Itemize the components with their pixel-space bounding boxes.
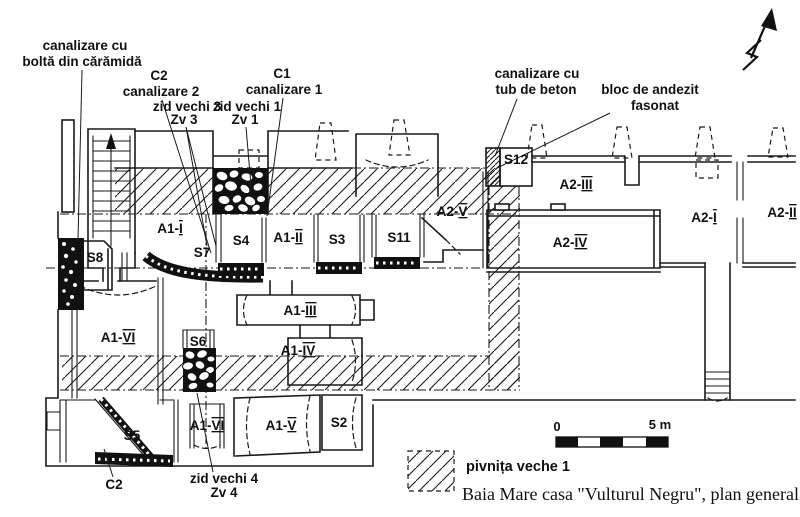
scale-five-label: 5 m (649, 417, 671, 432)
label-room-a2-v: A2-V (437, 204, 468, 219)
label-room-a1-vi-small: A1-VI (190, 418, 225, 433)
callout-c1-top-2: canalizare 1 (246, 82, 323, 97)
label-room-s3: S3 (329, 232, 346, 247)
label-room-a1-v: A1-V (266, 418, 297, 433)
legend-label: pivnița veche 1 (466, 459, 570, 475)
figure-caption: Baia Mare casa "Vulturul Negru", plan ge… (462, 484, 800, 504)
label-room-a1-ii: A1-II (273, 230, 302, 245)
callout-c2-top-1: C2 (150, 68, 167, 83)
callout-zv4-2: Zv 4 (210, 485, 238, 500)
label-room-a2-iv: A2-IV (553, 235, 588, 250)
label-room-a2-i: A2-I (691, 210, 717, 225)
callout-zv1-2: Zv 1 (231, 112, 259, 127)
stone-block-c1 (213, 168, 268, 214)
label-room-a1-iv: A1-IV (281, 343, 316, 358)
label-room-a1-iii: A1-III (283, 303, 316, 318)
callout-andezit-1: bloc de andezit (601, 82, 699, 97)
label-room-a1-vi: A1-VI (101, 330, 136, 345)
stairs-direction-arrow (106, 133, 116, 246)
scale-bar: 0 5 m (553, 417, 671, 447)
label-room-s5: S5 (124, 428, 141, 443)
legend: pivnița veche 1 Baia Mare casa "Vulturul… (408, 451, 800, 504)
callout-canalizare-bolta-1: canalizare cu (43, 38, 128, 53)
callout-c2-top-2: canalizare 2 (123, 84, 200, 99)
north-arrow-icon (743, 8, 777, 70)
scale-zero-label: 0 (553, 419, 560, 434)
callout-tub-beton-1: canalizare cu (495, 66, 580, 81)
callout-canalizare-bolta-2: boltă din cărămidă (22, 54, 142, 69)
label-room-s2: S2 (331, 415, 348, 430)
label-room-s7: S7 (194, 245, 211, 260)
label-room-s12: S12 (504, 152, 528, 167)
plan-figure: A1-I S7 S4 A1-II S3 S11 A2-V S8 S12 A2-I… (0, 0, 800, 517)
callout-c2-bottom: C2 (105, 477, 122, 492)
callout-c1-top-1: C1 (273, 66, 291, 81)
label-room-a2-ii: A2-II (767, 205, 796, 220)
label-room-a1-i: A1-I (157, 221, 183, 236)
callout-tub-beton-2: tub de beton (496, 82, 577, 97)
stone-block-s6 (182, 348, 216, 392)
label-room-a2-iii: A2-III (559, 177, 592, 192)
callout-zv3-2: Zv 3 (170, 112, 198, 127)
label-room-s6: S6 (190, 334, 207, 349)
callout-zv4-1: zid vechi 4 (190, 471, 259, 486)
label-room-s8: S8 (87, 250, 104, 265)
label-room-s4: S4 (233, 233, 250, 248)
plan-svg: A1-I S7 S4 A1-II S3 S11 A2-V S8 S12 A2-I… (0, 0, 800, 517)
label-room-s11: S11 (387, 230, 411, 245)
callout-andezit-2: fasonat (631, 98, 680, 113)
